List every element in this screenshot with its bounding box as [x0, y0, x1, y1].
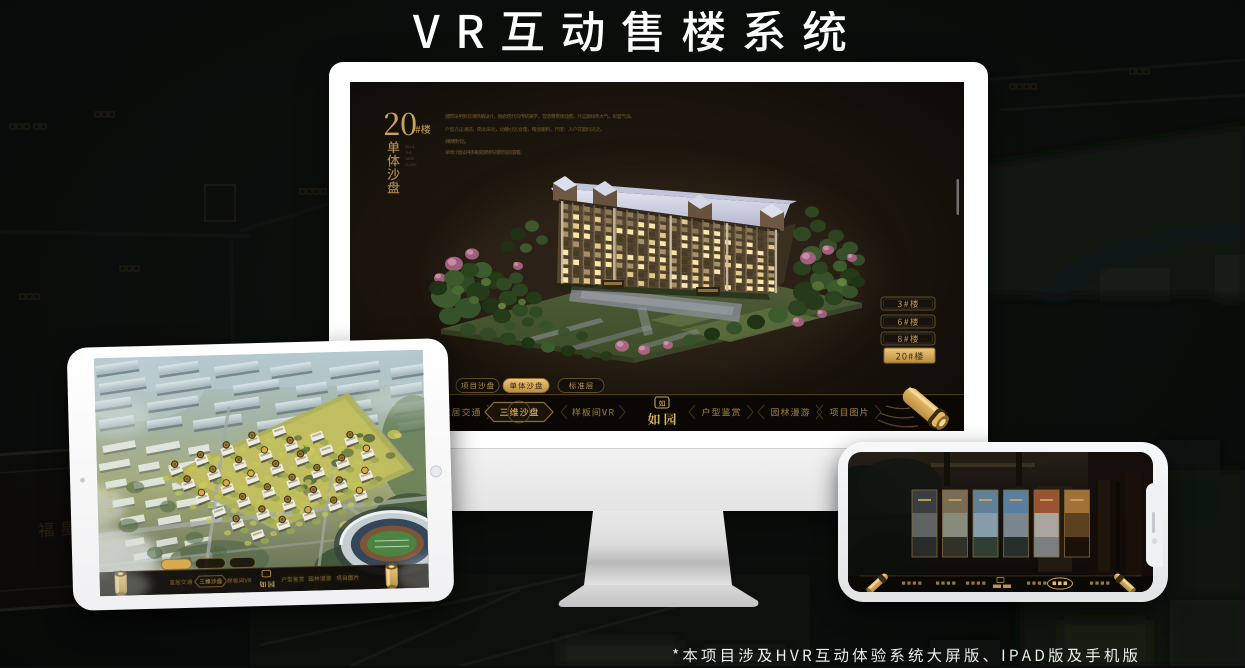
svg-text:YARD: YARD	[405, 157, 415, 161]
svg-text:VILLA: VILLA	[405, 145, 415, 149]
svg-text:CLASS: CLASS	[405, 163, 417, 167]
svg-text:THE: THE	[405, 151, 413, 155]
